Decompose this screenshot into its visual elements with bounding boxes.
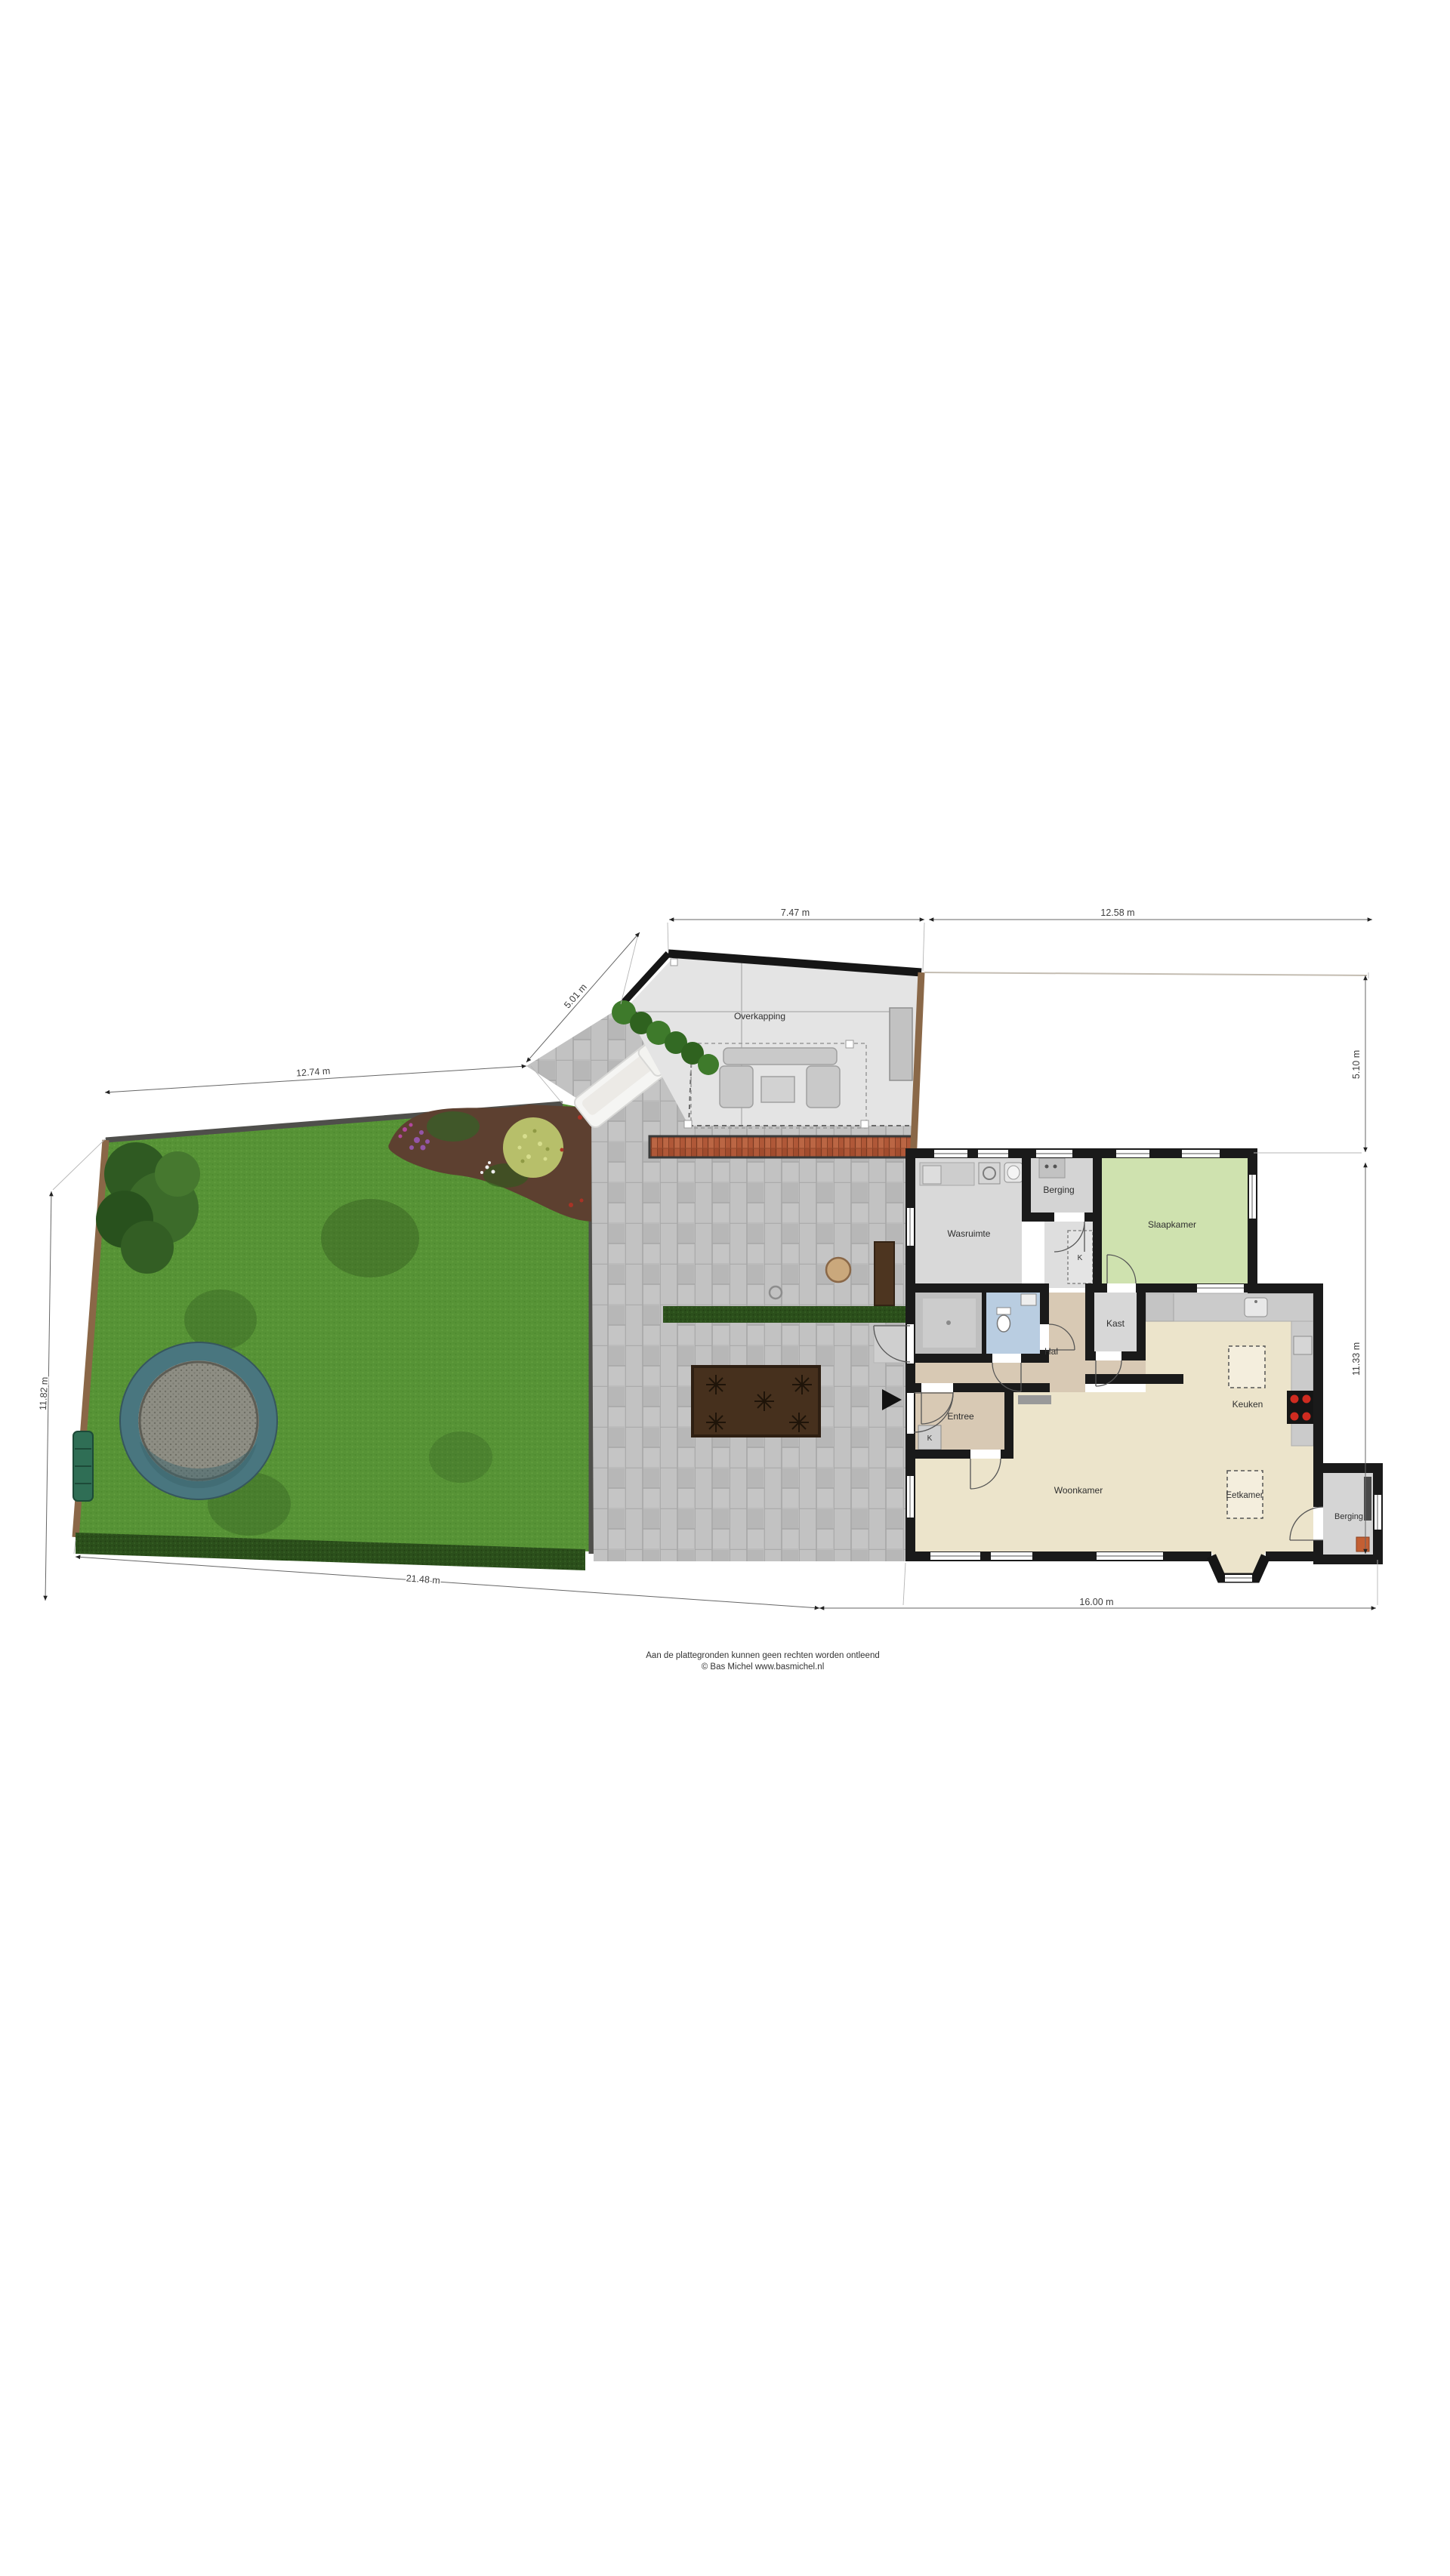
closet-k2-label: K xyxy=(927,1434,933,1443)
closet-k1-label: K xyxy=(1078,1254,1083,1262)
slaapkamer-label: Slaapkamer xyxy=(1148,1219,1196,1230)
yellow-bush xyxy=(503,1117,563,1178)
dim-right-upper: 5.10 m xyxy=(1351,1050,1362,1079)
dim-plot-top-right: 12.58 m xyxy=(1100,907,1134,918)
floorplan-drawing: Overkapping xyxy=(0,0,1450,2576)
eetkamer-label: Eetkamer xyxy=(1226,1491,1263,1500)
border-bed xyxy=(875,1242,894,1305)
dim-garden-left: 11.82 m xyxy=(38,1376,50,1410)
woonkamer-label: Woonkamer xyxy=(1054,1485,1103,1496)
dim-right-lower: 11.33 m xyxy=(1351,1342,1362,1376)
dim-garden-bottom: 21.48 m xyxy=(406,1573,440,1585)
trampoline xyxy=(120,1342,277,1499)
disclaimer-text: Aan de plattegronden kunnen geen rechten… xyxy=(646,1651,879,1660)
shower-drain xyxy=(946,1320,951,1325)
woonkamer-floor-mid xyxy=(1013,1392,1313,1462)
brick-path xyxy=(649,1136,913,1157)
boiler xyxy=(1039,1158,1065,1178)
patio-hedge-strip xyxy=(663,1306,910,1323)
garden xyxy=(73,1104,591,1570)
plot-boundary-line xyxy=(924,972,1367,975)
copyright-text: © Bas Michel www.basmichel.nl xyxy=(702,1662,825,1672)
kast-label: Kast xyxy=(1106,1318,1125,1329)
keuken-label: Keuken xyxy=(1232,1399,1263,1410)
footer: Aan de plattegronden kunnen geen rechten… xyxy=(646,1651,879,1672)
dim-overkapping-top: 7.47 m xyxy=(781,907,810,918)
kitchen-island xyxy=(1229,1346,1265,1388)
berging-rear-label: Berging xyxy=(1334,1512,1363,1521)
entree-label: Entree xyxy=(947,1411,974,1422)
overkapping-label: Overkapping xyxy=(734,1011,785,1021)
wasruimte-appliances xyxy=(920,1163,1023,1185)
hal-label: Hal xyxy=(1044,1346,1058,1357)
dim-house-bottom: 16.00 m xyxy=(1079,1597,1113,1607)
floorplan-page: Overkapping xyxy=(0,0,1450,2576)
garden-bench xyxy=(73,1431,93,1501)
wicker-basket xyxy=(826,1258,850,1282)
dim-garden-top: 12.74 m xyxy=(296,1065,331,1078)
doormat xyxy=(1018,1395,1051,1404)
house: Wasruimte Berging Slaapkamer Hal Kast K … xyxy=(874,1148,1383,1582)
planter-box xyxy=(693,1367,819,1436)
berging-top-label: Berging xyxy=(1043,1185,1074,1195)
storage-cabinet xyxy=(890,1008,912,1080)
wasruimte-label: Wasruimte xyxy=(948,1228,991,1239)
